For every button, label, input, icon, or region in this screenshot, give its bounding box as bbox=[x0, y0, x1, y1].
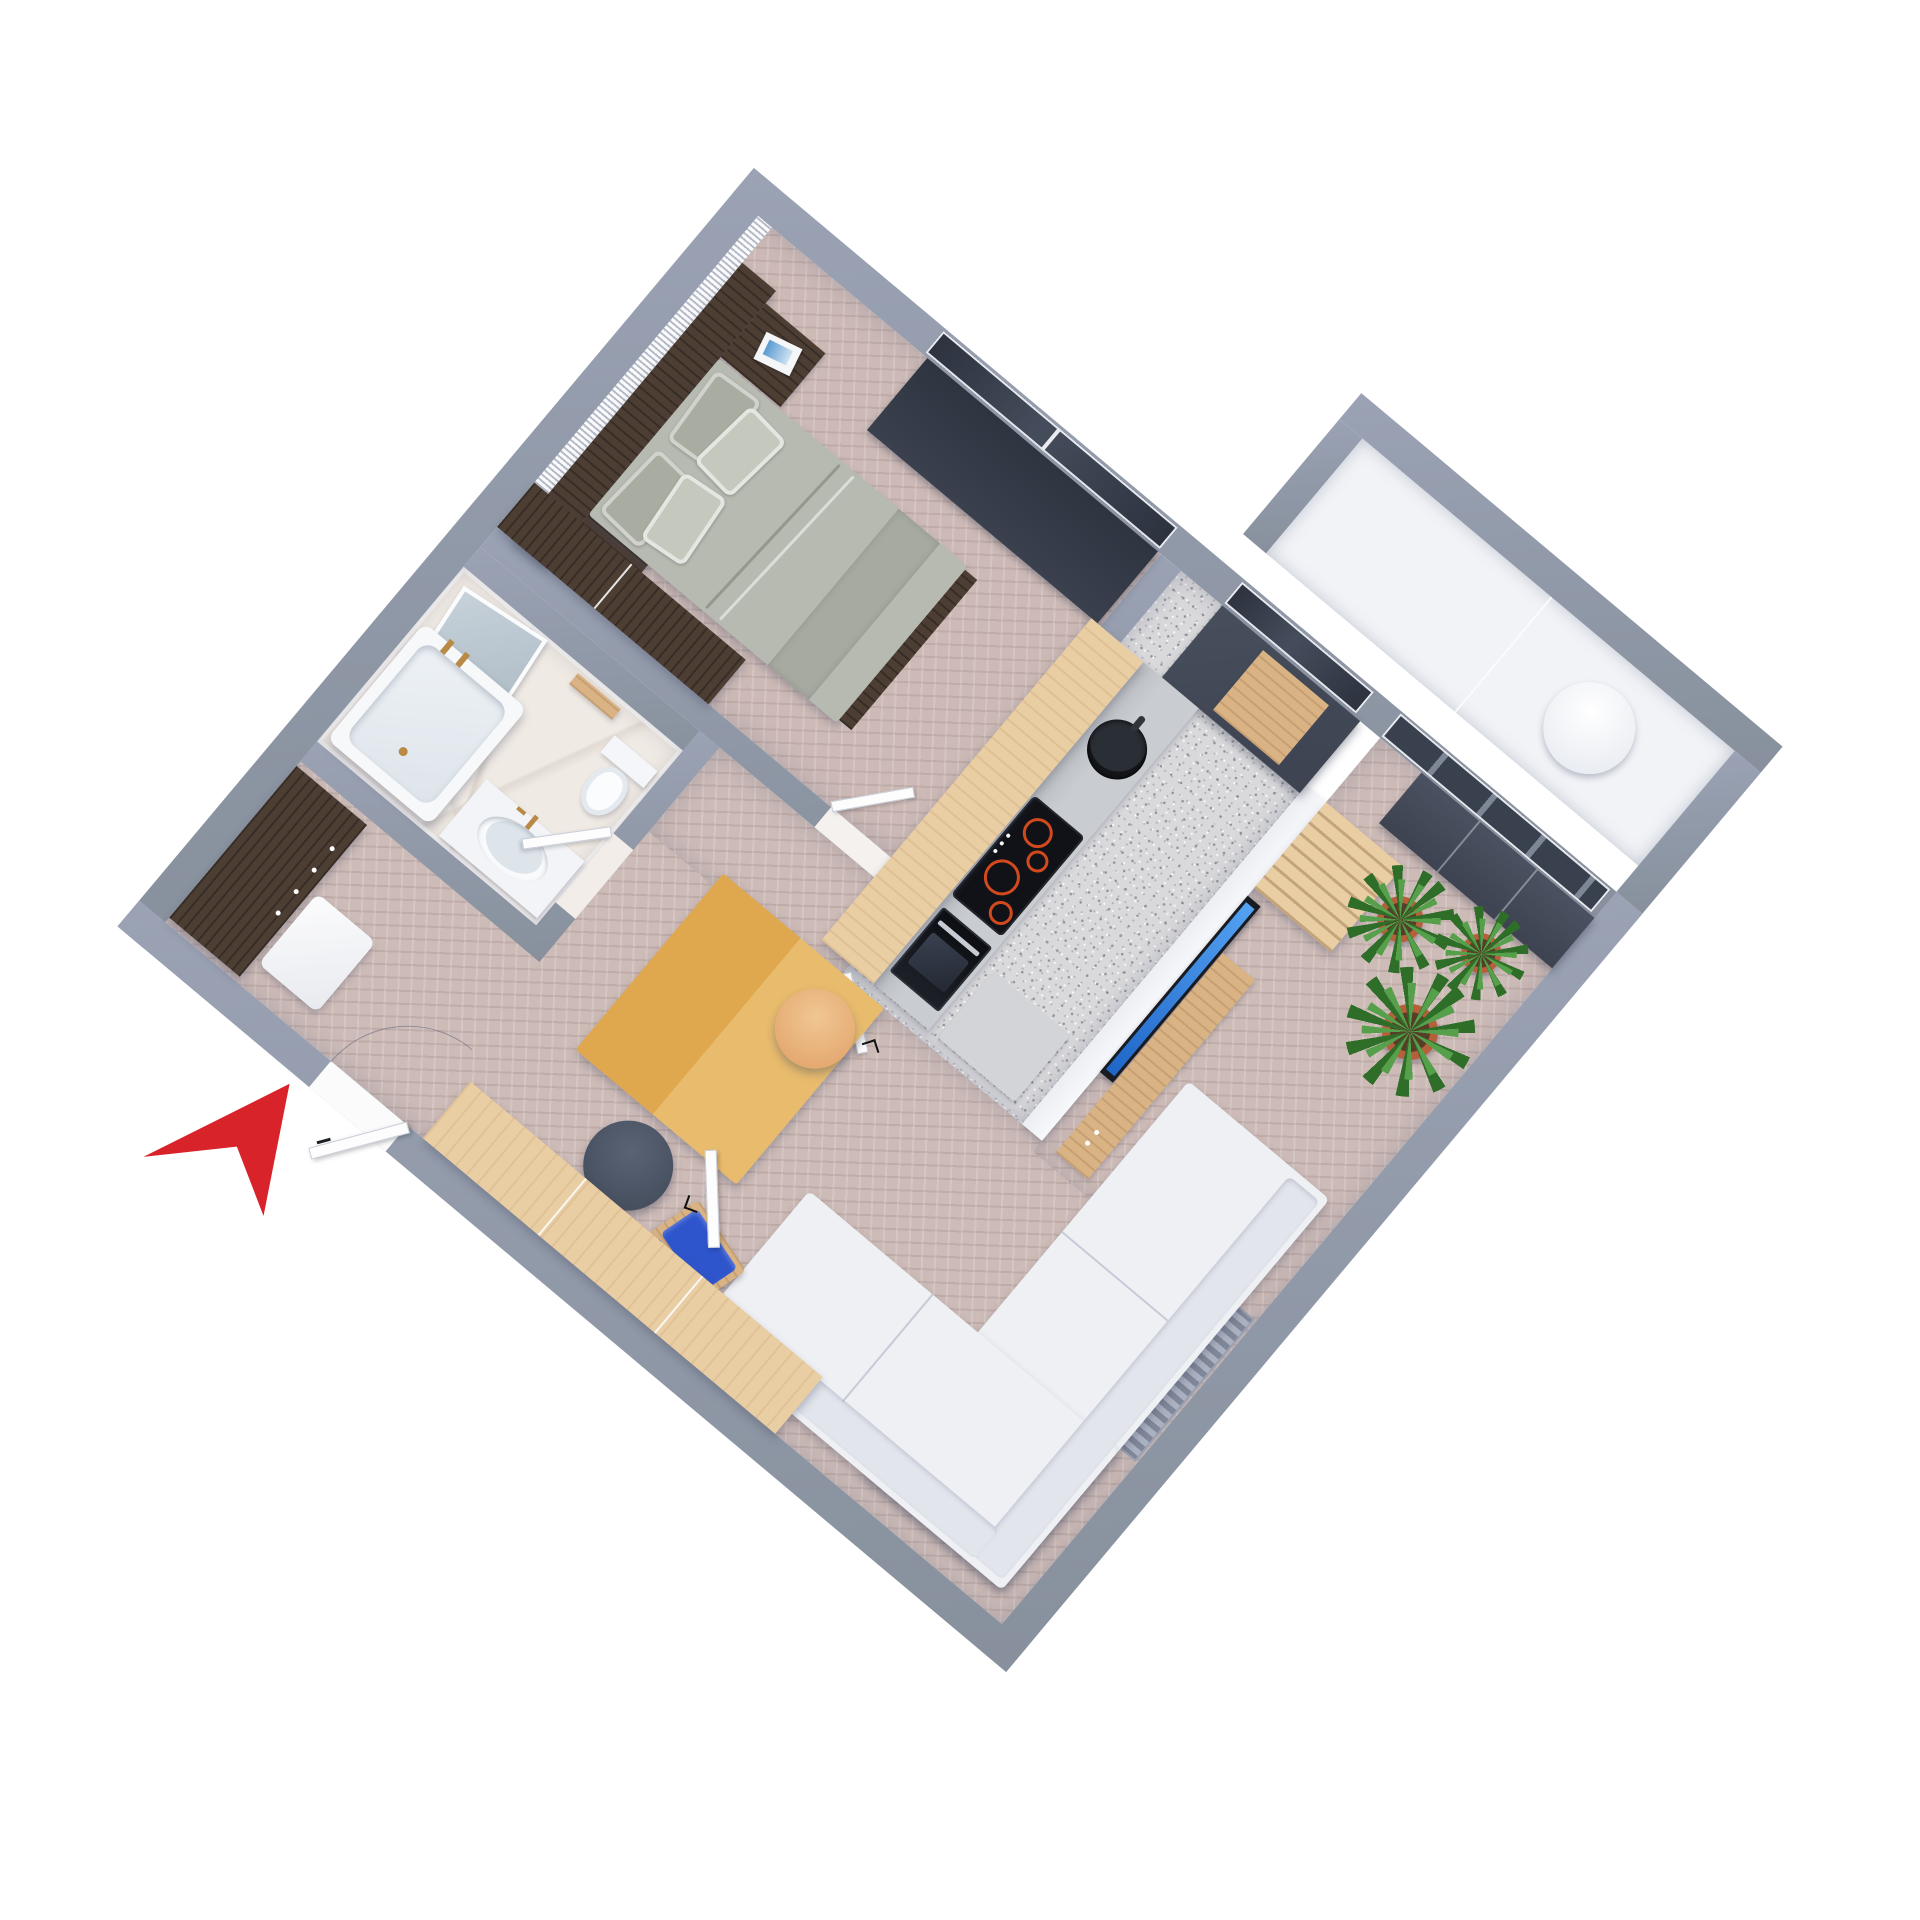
apartment-plan bbox=[118, 168, 1643, 1672]
floor-plan-canvas bbox=[0, 0, 1920, 1920]
